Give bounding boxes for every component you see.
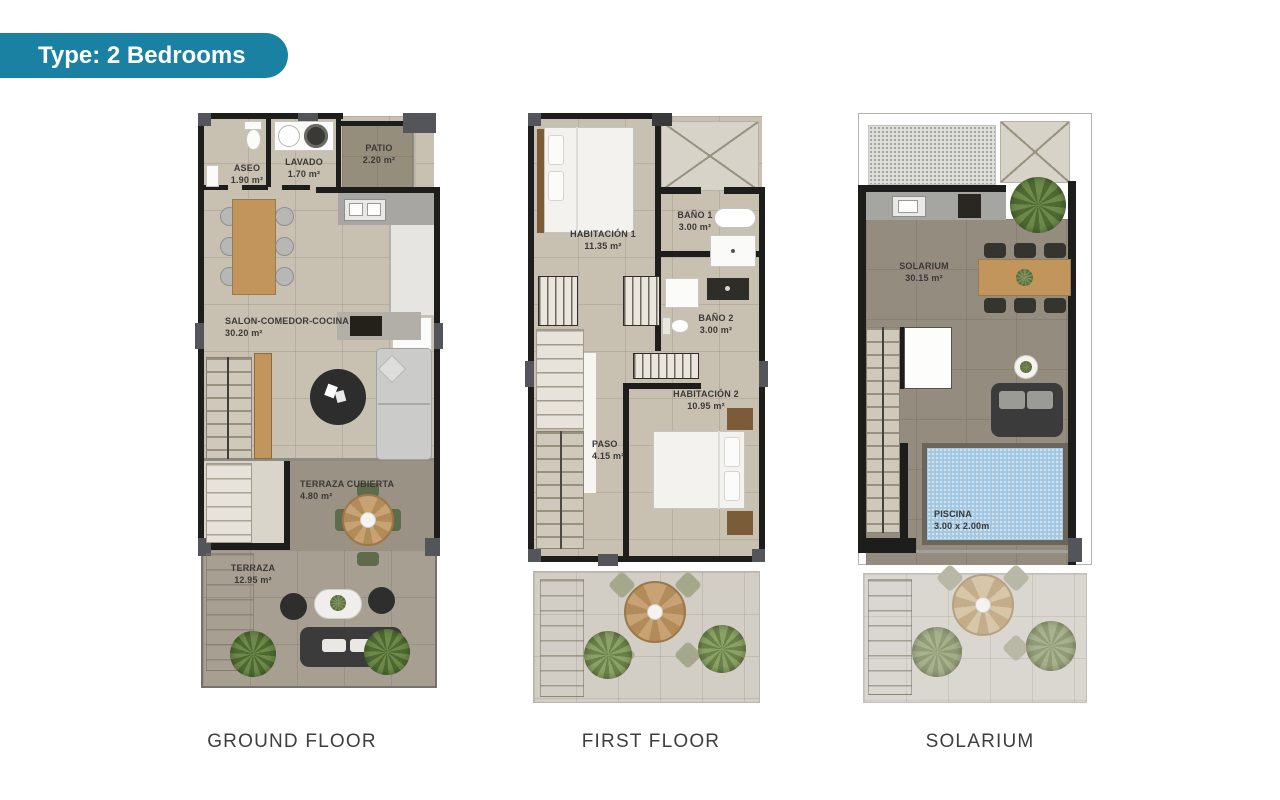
column-cap: [195, 323, 204, 349]
column-cap: [425, 538, 440, 556]
room-label-habitacion2: HABITACIÓN 2 10.95 m²: [670, 389, 742, 412]
pillow: [548, 171, 564, 201]
wall: [198, 543, 290, 550]
plant: [912, 627, 962, 677]
dining-chair: [1044, 298, 1066, 313]
room-name: HABITACIÓN 1: [568, 229, 638, 241]
plant: [364, 629, 410, 675]
cushion: [999, 391, 1025, 409]
column-cap: [528, 549, 541, 562]
tiled-area: [1000, 121, 1070, 183]
ground-floor-plan: ASEO 1.90 m² LAVADO 1.70 m² PATIO 2.20 m…: [198, 113, 440, 690]
wall: [528, 113, 534, 562]
room-label-aseo: ASEO 1.90 m²: [218, 163, 276, 186]
room-name: PASO: [592, 439, 642, 451]
room-area: 2.20 m²: [348, 155, 410, 167]
wall: [528, 556, 765, 562]
pillow: [724, 437, 740, 467]
room-name: PATIO: [348, 143, 410, 155]
floor-title-first: FIRST FLOOR: [556, 731, 746, 755]
room-name: BAÑO 1: [664, 210, 726, 222]
cushion: [1027, 391, 1053, 409]
dryer: [304, 124, 328, 148]
stair-rail: [227, 357, 229, 459]
wall: [858, 538, 916, 553]
room-label-habitacion1: HABITACIÓN 1 11.35 m²: [568, 229, 638, 252]
dining-table: [232, 199, 276, 295]
room-area: 10.95 m²: [670, 401, 742, 413]
room-area: 4.80 m²: [300, 491, 395, 503]
plant: [1010, 177, 1066, 233]
gravel-area: [868, 125, 996, 185]
nightstand: [727, 511, 753, 535]
room-label-patio: PATIO 2.20 m²: [348, 143, 410, 166]
plant: [1020, 361, 1032, 373]
room-area: 4.15 m²: [592, 451, 642, 463]
sink-bowl: [898, 200, 918, 213]
stair-void-rail: [540, 579, 584, 697]
type-badge: Type: 2 Bedrooms: [0, 33, 288, 78]
room-label-lavado: LAVADO 1.70 m²: [272, 157, 336, 180]
room-name: PISCINA: [934, 509, 1006, 521]
room-name: SOLARIUM: [892, 261, 956, 273]
stairs: [206, 357, 252, 459]
column-cap: [525, 361, 534, 387]
column-cap: [198, 113, 211, 126]
column-cap: [1068, 538, 1082, 562]
room-area: 3.00 x 2.00m: [934, 521, 1006, 533]
wardrobe: [633, 353, 699, 379]
wall: [1068, 181, 1076, 565]
toilet: [246, 129, 261, 150]
dining-chair: [1014, 298, 1036, 313]
room-area: 1.70 m²: [272, 169, 336, 181]
room-label-solarium: SOLARIUM 30.15 m²: [892, 261, 956, 284]
shower-drain: [725, 286, 730, 291]
room-label-paso: PASO 4.15 m²: [592, 439, 642, 462]
room-area: 3.00 m²: [664, 222, 726, 234]
first-floor-plan: HABITACIÓN 1 11.35 m² BAÑO 1 3.00 m² BAÑ…: [528, 113, 765, 703]
table-center: [647, 604, 663, 620]
room-name: HABITACIÓN 2: [670, 389, 742, 401]
sideboard: [254, 353, 272, 459]
room-name: BAÑO 2: [684, 313, 748, 325]
room-name: TERRAZA: [222, 563, 284, 575]
column-cap: [528, 113, 541, 126]
room-name: LAVADO: [272, 157, 336, 169]
room-area: 12.95 m²: [222, 575, 284, 587]
floor-title-solarium: SOLARIUM: [885, 731, 1075, 755]
column-cap: [434, 323, 443, 349]
wall: [623, 389, 629, 556]
lightwell-void: [661, 121, 759, 191]
stair-rail: [560, 431, 562, 549]
room-area: 3.00 m²: [684, 325, 748, 337]
room-label-salon: SALON-COMEDOR-COCINA 30.20 m²: [225, 316, 360, 339]
room-name: TERRAZA CUBIERTA: [300, 479, 395, 491]
column-cap: [598, 554, 618, 566]
plant: [698, 625, 746, 673]
room-label-terraza: TERRAZA 12.95 m²: [222, 563, 284, 586]
stair-void-rail: [868, 579, 912, 695]
pillow: [724, 471, 740, 501]
wall: [282, 185, 310, 190]
plant: [1016, 269, 1033, 286]
stairs-lower: [206, 463, 252, 543]
table-center: [360, 512, 376, 528]
wall: [724, 187, 759, 194]
floor-title-ground: GROUND FLOOR: [197, 731, 387, 755]
room-area: 30.15 m²: [892, 273, 956, 285]
wall: [284, 461, 290, 550]
column-cap: [652, 113, 672, 126]
plant: [584, 631, 632, 679]
room-area: 11.35 m²: [568, 241, 638, 253]
dining-chair: [1014, 243, 1036, 258]
headboard: [537, 129, 544, 233]
duvet-fold: [576, 127, 578, 233]
room-area: 1.90 m²: [218, 175, 276, 187]
wall: [661, 187, 701, 194]
pillow: [548, 135, 564, 165]
column-cap: [403, 113, 436, 133]
outdoor-counter: [866, 192, 1006, 220]
stair-rail: [882, 327, 884, 533]
dining-chair: [275, 237, 294, 256]
wall: [336, 119, 341, 193]
room-name: SALON-COMEDOR-COCINA: [225, 316, 360, 328]
wardrobe: [538, 276, 578, 326]
plant: [1026, 621, 1076, 671]
wall: [900, 443, 908, 543]
stair-void: [904, 327, 952, 389]
pouf: [368, 587, 395, 614]
floorplan-sheet: Type: 2 Bedrooms: [0, 0, 1280, 800]
type-badge-label: Type: 2 Bedrooms: [38, 42, 246, 69]
hob: [958, 194, 981, 218]
wall: [434, 187, 440, 556]
wardrobe: [623, 276, 660, 326]
terrace-chair: [357, 552, 379, 566]
washing-machine: [278, 125, 300, 147]
table-center: [975, 597, 991, 613]
dining-chair: [275, 207, 294, 226]
room-name: ASEO: [218, 163, 276, 175]
room-area: 30.20 m²: [225, 328, 360, 340]
dining-chair: [275, 267, 294, 286]
duvet-fold: [718, 431, 720, 509]
column-cap: [759, 361, 768, 387]
sink-bowl: [367, 203, 381, 216]
edge-line: [916, 550, 1068, 553]
solarium-plan: PISCINA 3.00 x 2.00m SOLARIUM 30.15 m²: [858, 113, 1097, 703]
dining-chair: [984, 243, 1006, 258]
sofa-seam: [378, 403, 430, 405]
dining-chair: [1044, 243, 1066, 258]
wall: [866, 185, 1006, 192]
shower-drain: [731, 249, 735, 253]
room-label-piscina: PISCINA 3.00 x 2.00m: [934, 509, 1006, 532]
room-label-bano2: BAÑO 2 3.00 m²: [684, 313, 748, 336]
washbasin: [665, 278, 699, 308]
sink-bowl: [349, 203, 363, 216]
wall: [528, 113, 663, 119]
stair-wall: [584, 353, 596, 493]
room-label-bano1: BAÑO 1 3.00 m²: [664, 210, 726, 233]
kitchen-tall-units: [390, 225, 434, 315]
pouf: [280, 593, 307, 620]
wall: [858, 185, 866, 538]
plant: [230, 631, 276, 677]
room-label-terraza-cubierta: TERRAZA CUBIERTA 4.80 m²: [300, 479, 395, 502]
toilet-tank: [662, 317, 671, 335]
plant: [330, 595, 346, 611]
dining-chair: [984, 298, 1006, 313]
column-cap: [752, 549, 765, 562]
cushion: [322, 639, 346, 652]
stairs-upper: [536, 329, 584, 429]
